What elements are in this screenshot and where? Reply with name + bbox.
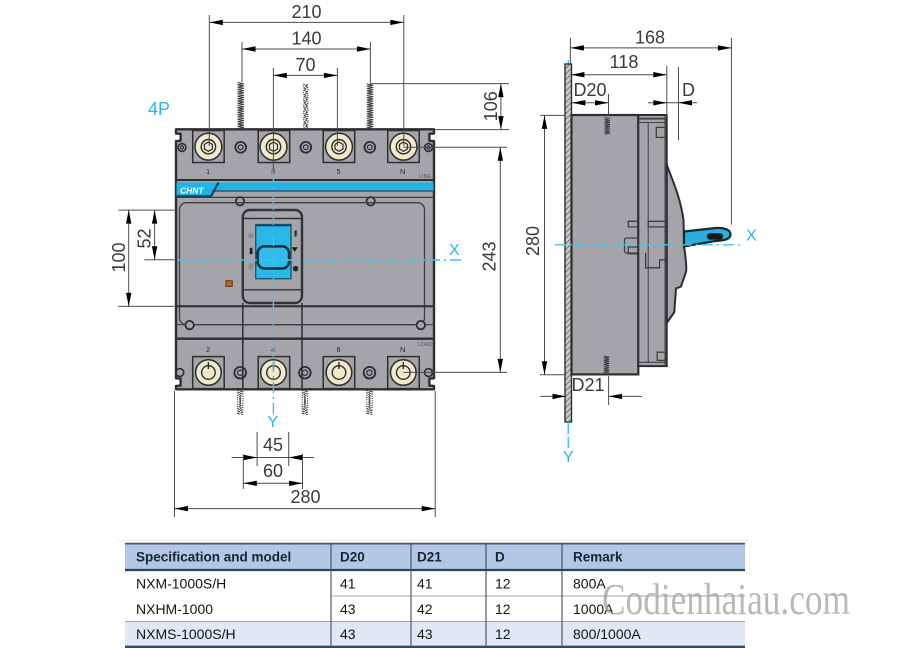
svg-text:D: D — [682, 80, 695, 100]
svg-text:N: N — [400, 167, 405, 176]
svg-text:NXMS-1000S/H: NXMS-1000S/H — [136, 626, 236, 642]
svg-text:X: X — [746, 228, 757, 245]
svg-text:280: 280 — [290, 487, 320, 507]
svg-text:42: 42 — [417, 601, 433, 617]
svg-text:70: 70 — [295, 55, 315, 75]
svg-text:800/1000A: 800/1000A — [573, 626, 641, 642]
svg-text:X: X — [449, 242, 460, 259]
svg-text:243: 243 — [480, 241, 500, 271]
svg-text:Specification and model: Specification and model — [136, 550, 291, 565]
svg-text:D21: D21 — [571, 375, 604, 395]
svg-text:Y: Y — [268, 414, 279, 431]
svg-text:4P: 4P — [148, 99, 170, 119]
svg-text:12: 12 — [495, 576, 511, 592]
svg-text:5: 5 — [337, 167, 341, 176]
svg-text:118: 118 — [610, 52, 639, 72]
svg-text:D21: D21 — [417, 550, 442, 565]
svg-text:D20: D20 — [573, 80, 606, 100]
svg-text:43: 43 — [340, 601, 356, 617]
svg-text:NXM-1000S/H: NXM-1000S/H — [136, 576, 226, 592]
svg-text:45: 45 — [263, 435, 283, 455]
svg-text:LOAD: LOAD — [418, 342, 433, 348]
svg-text:210: 210 — [291, 2, 321, 22]
svg-text:Remark: Remark — [573, 550, 623, 565]
svg-text:12: 12 — [495, 601, 511, 617]
svg-text:60: 60 — [263, 461, 283, 481]
svg-text:168: 168 — [635, 28, 665, 48]
svg-text:43: 43 — [340, 626, 356, 642]
svg-text:106: 106 — [481, 91, 501, 121]
svg-text:LINE: LINE — [419, 174, 431, 180]
svg-text:41: 41 — [417, 576, 433, 592]
svg-text:NXHM-1000: NXHM-1000 — [136, 601, 213, 617]
svg-text:43: 43 — [417, 626, 433, 642]
svg-text:100: 100 — [109, 242, 129, 272]
svg-text:D20: D20 — [340, 550, 365, 565]
svg-text:N: N — [400, 345, 405, 354]
svg-text:CHNT: CHNT — [180, 186, 204, 196]
svg-text:6: 6 — [337, 345, 341, 354]
svg-text:Y: Y — [563, 449, 574, 466]
svg-text:140: 140 — [291, 29, 321, 49]
svg-text:Codienhaiau.com: Codienhaiau.com — [602, 575, 850, 624]
svg-text:1: 1 — [206, 167, 210, 176]
svg-text:280: 280 — [523, 226, 543, 256]
svg-text:2: 2 — [206, 345, 210, 354]
svg-text:52: 52 — [135, 228, 155, 248]
svg-text:12: 12 — [495, 626, 511, 642]
svg-text:41: 41 — [340, 576, 356, 592]
svg-text:D: D — [495, 550, 505, 565]
